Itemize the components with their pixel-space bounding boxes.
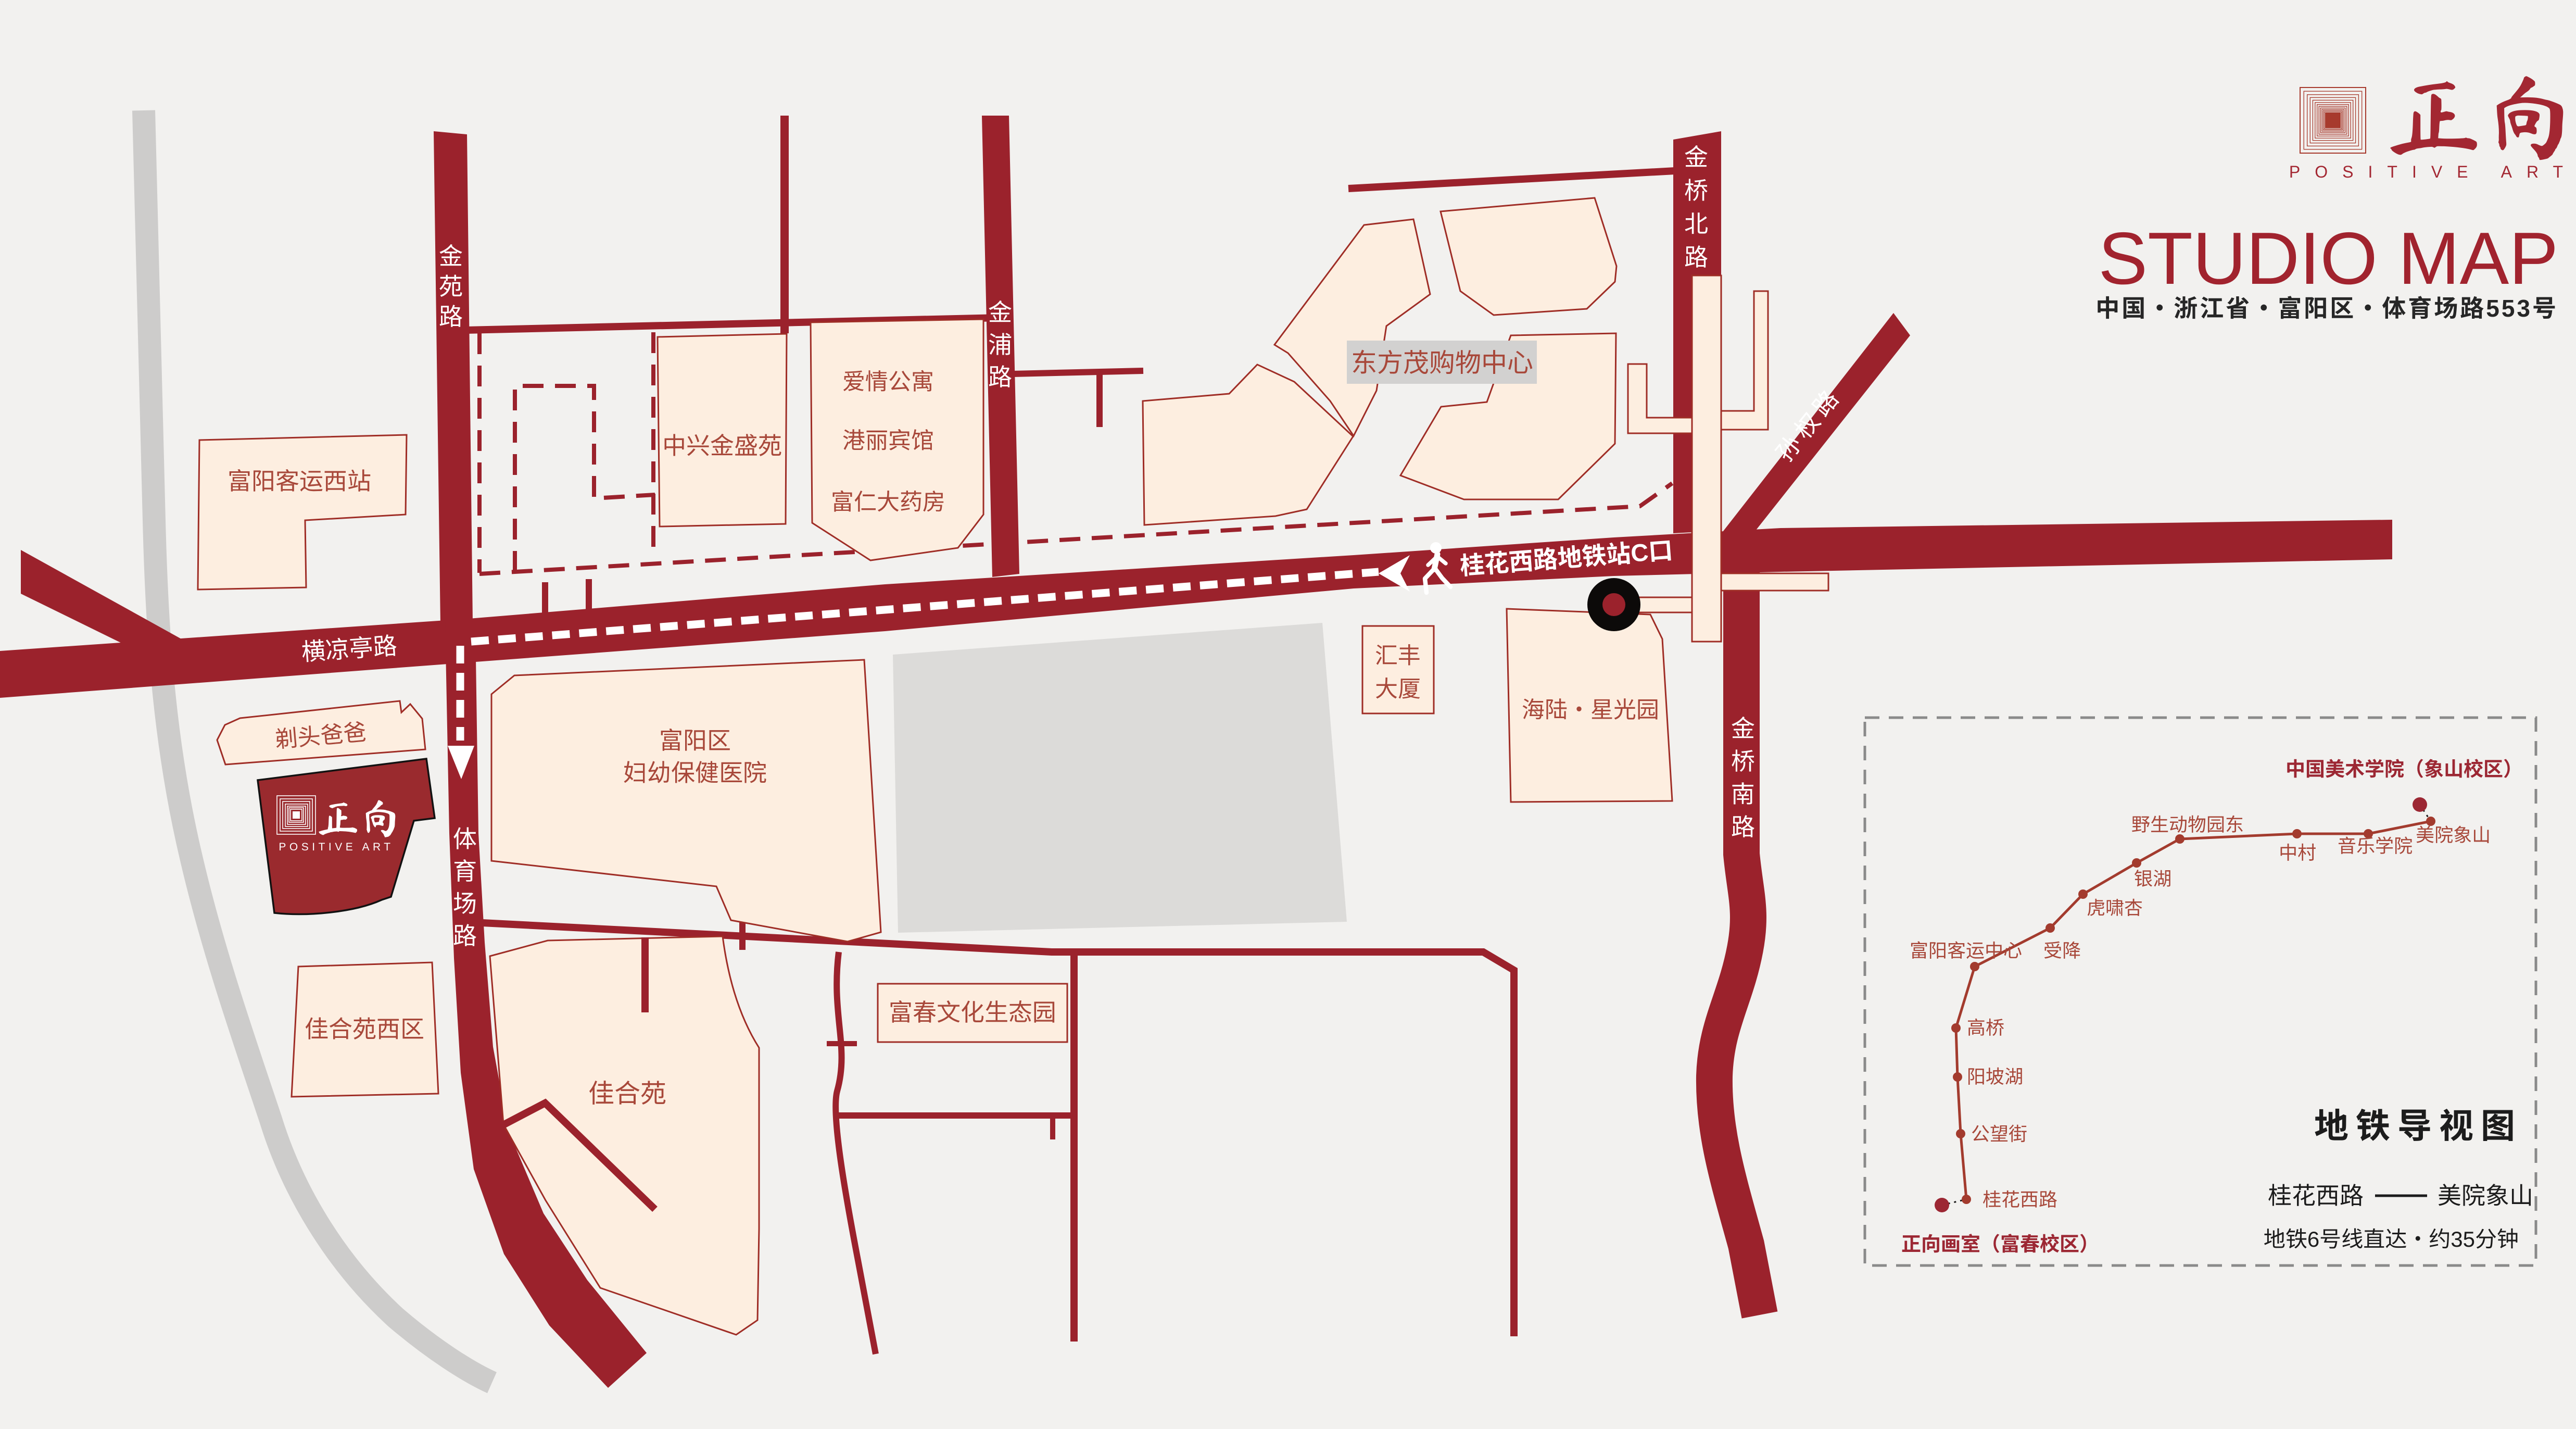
svg-text:金: 金 [988,294,1012,328]
svg-text:场: 场 [453,885,477,919]
svg-text:野生动物园东: 野生动物园东 [2131,810,2244,837]
svg-text:中国美术学院（象山校区）: 中国美术学院（象山校区） [2285,753,2523,782]
svg-text:中兴金盛苑: 中兴金盛苑 [662,427,782,461]
svg-text:正向画室（富春校区）: 正向画室（富春校区） [1901,1228,2099,1257]
svg-text:路: 路 [988,358,1012,393]
svg-text:大厦: 大厦 [1375,670,1421,704]
svg-text:苑: 苑 [439,268,463,302]
svg-text:桥: 桥 [1684,172,1708,206]
svg-text:受降: 受降 [2043,936,2081,963]
svg-text:中国·浙江省·富阳区·体育场路553号: 中国·浙江省·富阳区·体育场路553号 [2095,290,2558,324]
svg-text:富阳客运西站: 富阳客运西站 [228,462,371,497]
svg-text:海陆·星光园: 海陆·星光园 [1522,691,1659,724]
svg-text:地铁导视图: 地铁导视图 [2314,1098,2522,1148]
svg-text:路: 路 [1684,239,1708,273]
svg-text:浦: 浦 [988,326,1012,360]
svg-text:音乐学院: 音乐学院 [2338,831,2413,858]
svg-text:港丽宾馆: 港丽宾馆 [842,422,934,455]
svg-text:佳合苑西区: 佳合苑西区 [305,1010,424,1045]
svg-text:POSITIVE ART: POSITIVE ART [2289,162,2576,181]
svg-text:富阳客运中心: 富阳客运中心 [1910,936,2022,963]
svg-text:公望街: 公望街 [1971,1119,2027,1146]
svg-text:金: 金 [1731,710,1755,744]
svg-text:美院象山: 美院象山 [2416,820,2491,847]
svg-text:佳合苑: 佳合苑 [588,1073,666,1110]
svg-text:中村: 中村 [2279,838,2316,865]
svg-text:横凉亭路: 横凉亭路 [300,627,398,668]
svg-text:金: 金 [1684,139,1708,173]
svg-text:汇丰: 汇丰 [1375,637,1421,670]
svg-text:STUDIO MAP: STUDIO MAP [2098,217,2558,300]
svg-text:育: 育 [453,853,477,887]
svg-text:富春文化生态园: 富春文化生态园 [889,994,1056,1028]
svg-text:南: 南 [1731,775,1755,810]
svg-text:美院象山: 美院象山 [2438,1177,2533,1211]
svg-text:银湖: 银湖 [2134,864,2171,891]
svg-text:地铁6号线直达·约35分钟: 地铁6号线直达·约35分钟 [2264,1222,2519,1253]
svg-text:桂花西路: 桂花西路 [1982,1185,2057,1212]
svg-text:金: 金 [439,237,463,272]
svg-text:东方茂购物中心: 东方茂购物中心 [1351,342,1533,380]
svg-text:虎啸杏: 虎啸杏 [2087,893,2143,920]
svg-text:桂花西路: 桂花西路 [2268,1177,2364,1211]
svg-text:爱情公寓: 爱情公寓 [842,363,934,396]
svg-text:路: 路 [1731,808,1755,843]
svg-text:正向: 正向 [317,796,402,839]
svg-text:桥: 桥 [1731,743,1755,777]
svg-text:正向: 正向 [2385,68,2576,164]
svg-text:富仁大药房: 富仁大药房 [831,483,945,517]
svg-text:高桥: 高桥 [1967,1013,2004,1040]
svg-text:体: 体 [453,820,477,855]
svg-text:阳坡湖: 阳坡湖 [1967,1062,2023,1089]
svg-text:路: 路 [439,298,463,332]
svg-text:富阳区: 富阳区 [659,722,731,756]
svg-text:POSITIVE ART: POSITIVE ART [279,841,394,853]
svg-text:北: 北 [1684,205,1708,240]
svg-text:妇幼保健医院: 妇幼保健医院 [623,754,767,788]
svg-text:路: 路 [453,917,477,951]
